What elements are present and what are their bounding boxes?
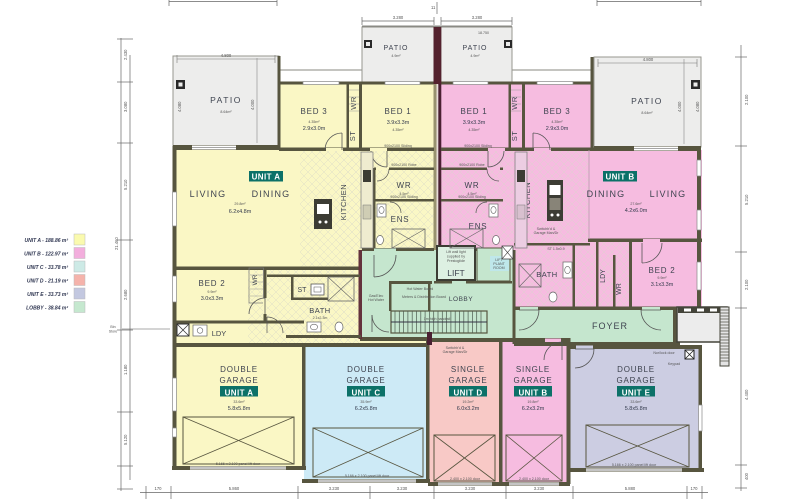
svg-text:2.400 x 2.100 door: 2.400 x 2.100 door (450, 477, 481, 481)
svg-text:DOUBLE: DOUBLE (617, 365, 655, 374)
svg-text:WR: WR (510, 96, 519, 110)
svg-text:3.230: 3.230 (534, 486, 545, 491)
svg-text:DINING: DINING (252, 189, 291, 199)
svg-text:19.8m²: 19.8m² (527, 400, 539, 404)
svg-text:4.5m²: 4.5m² (399, 192, 409, 196)
svg-text:Prestoglide: Prestoglide (447, 259, 465, 263)
svg-text:Hot Water Board: Hot Water Board (407, 287, 434, 291)
svg-text:2.1x2.3m: 2.1x2.3m (313, 316, 328, 320)
svg-text:UNIT C: UNIT C (351, 389, 380, 398)
svg-text:9.9m²: 9.9m² (657, 276, 667, 280)
svg-text:Nor/lock door: Nor/lock door (653, 351, 675, 355)
svg-text:WR: WR (349, 96, 358, 110)
svg-text:3.0x3.3m: 3.0x3.3m (201, 296, 224, 302)
svg-text:3.230: 3.230 (329, 486, 340, 491)
svg-text:5.880: 5.880 (625, 486, 636, 491)
svg-text:4.9m²: 4.9m² (391, 54, 401, 58)
svg-text:GARAGE: GARAGE (448, 376, 487, 385)
svg-text:5.120: 5.120 (123, 434, 128, 445)
svg-text:3.230: 3.230 (397, 486, 408, 491)
svg-text:LIFT: LIFT (447, 268, 464, 278)
svg-text:9.9m²: 9.9m² (207, 290, 217, 294)
svg-text:2.9x3.0m: 2.9x3.0m (303, 126, 326, 132)
svg-text:Keypad: Keypad (668, 362, 680, 366)
svg-text:GARAGE: GARAGE (346, 376, 385, 385)
svg-text:WR: WR (252, 274, 259, 285)
svg-text:3.280: 3.280 (393, 15, 404, 20)
svg-text:6.2x5.8m: 6.2x5.8m (355, 406, 378, 412)
svg-text:6.0x3.2m: 6.0x3.2m (457, 406, 480, 412)
svg-text:4.9m²: 4.9m² (470, 54, 480, 58)
svg-text:3.1x3.3m: 3.1x3.3m (651, 282, 674, 288)
svg-text:2.100: 2.100 (744, 279, 749, 290)
svg-text:5.210: 5.210 (744, 194, 749, 205)
svg-text:PATIO: PATIO (384, 45, 409, 52)
svg-text:PATIO: PATIO (210, 95, 242, 105)
svg-text:4.35m²: 4.35m² (308, 120, 320, 124)
svg-text:UNIT A - 188.86 m²: UNIT A - 188.86 m² (24, 238, 68, 244)
svg-text:11: 11 (431, 5, 436, 10)
svg-text:BATH: BATH (536, 270, 557, 279)
svg-text:29.8m²: 29.8m² (234, 202, 246, 206)
svg-text:900x2100 Sliding: 900x2100 Sliding (464, 144, 492, 148)
svg-text:8.64m²: 8.64m² (220, 110, 232, 114)
svg-text:3.080: 3.080 (123, 101, 128, 112)
svg-text:DOUBLE: DOUBLE (220, 365, 258, 374)
svg-text:4.35m²: 4.35m² (392, 128, 404, 132)
svg-text:BED 3: BED 3 (543, 107, 570, 116)
svg-text:GARAGE: GARAGE (616, 376, 655, 385)
svg-text:3.280: 3.280 (472, 15, 483, 20)
svg-text:WR: WR (397, 181, 412, 190)
svg-text:Garage Man/Dr: Garage Man/Dr (534, 231, 560, 235)
svg-text:WR: WR (465, 181, 480, 190)
svg-text:UNIT A: UNIT A (252, 173, 281, 182)
svg-text:LDY: LDY (600, 269, 607, 283)
svg-text:UNIT B - 122.97 m²: UNIT B - 122.97 m² (24, 252, 68, 258)
svg-text:4.080: 4.080 (177, 101, 182, 112)
svg-text:DINING: DINING (587, 189, 626, 199)
svg-text:2.680: 2.680 (123, 289, 128, 300)
svg-text:3.9x3.3m: 3.9x3.3m (387, 120, 410, 126)
svg-text:6.2x3.2m: 6.2x3.2m (522, 406, 545, 412)
svg-text:WR: WR (616, 283, 623, 295)
svg-text:Meters & Distribution Board: Meters & Distribution Board (402, 295, 446, 299)
svg-text:PATIO: PATIO (631, 96, 663, 106)
svg-text:4.5m²: 4.5m² (467, 192, 477, 196)
svg-text:170: 170 (155, 486, 163, 491)
svg-text:Hot Water: Hot Water (368, 298, 385, 302)
svg-text:SINGLE: SINGLE (451, 365, 485, 374)
svg-text:5.166 x 2.100 panel lift door: 5.166 x 2.100 panel lift door (216, 462, 261, 466)
svg-text:ST: ST (298, 287, 308, 294)
svg-text:LIVING: LIVING (190, 189, 227, 199)
svg-text:UNIT C - 33.78 m²: UNIT C - 33.78 m² (27, 265, 68, 271)
svg-text:GARAGE: GARAGE (219, 376, 258, 385)
svg-text:ST 1.5x0.9: ST 1.5x0.9 (547, 247, 564, 251)
svg-text:5.8x5.8m: 5.8x5.8m (228, 406, 251, 412)
svg-text:21.460: 21.460 (114, 237, 119, 250)
svg-text:BED 3: BED 3 (300, 107, 327, 116)
svg-text:1m high handrail: 1m high handrail (424, 317, 451, 321)
svg-text:PATIO: PATIO (463, 45, 488, 52)
svg-text:UNIT D: UNIT D (453, 389, 482, 398)
svg-text:4.2x6.0m: 4.2x6.0m (625, 208, 648, 214)
svg-text:4.400: 4.400 (744, 389, 749, 400)
svg-text:LOBBY: LOBBY (449, 296, 473, 303)
svg-text:ENS: ENS (391, 215, 410, 224)
svg-text:5.166 x 2.100 panel lift door: 5.166 x 2.100 panel lift door (612, 463, 657, 467)
svg-text:900x2100 Robe: 900x2100 Robe (391, 163, 416, 167)
svg-text:ST: ST (510, 131, 519, 142)
svg-text:FOYER: FOYER (592, 321, 628, 331)
svg-text:SINGLE: SINGLE (516, 365, 550, 374)
svg-text:2.430: 2.430 (123, 49, 128, 60)
svg-text:KITCHEN: KITCHEN (339, 184, 348, 220)
svg-text:6.2x4.8m: 6.2x4.8m (229, 209, 252, 215)
svg-text:LOBBY - 38.84 m²: LOBBY - 38.84 m² (26, 306, 68, 312)
svg-text:5.860: 5.860 (229, 486, 240, 491)
svg-text:BED 2: BED 2 (648, 266, 675, 275)
svg-text:8.64m²: 8.64m² (641, 111, 653, 115)
svg-text:DOUBLE: DOUBLE (347, 365, 385, 374)
svg-text:UNIT B: UNIT B (518, 389, 547, 398)
svg-text:BED 2: BED 2 (198, 279, 225, 288)
svg-text:400: 400 (744, 472, 749, 480)
svg-text:35.9m²: 35.9m² (360, 400, 372, 404)
svg-text:GARAGE: GARAGE (513, 376, 552, 385)
svg-text:BATH: BATH (309, 306, 330, 315)
svg-text:1.180: 1.180 (123, 364, 128, 375)
svg-text:UNIT D - 21.19 m²: UNIT D - 21.19 m² (27, 279, 68, 285)
svg-text:170: 170 (691, 486, 699, 491)
svg-text:LIVING: LIVING (650, 189, 687, 199)
svg-text:Store: Store (109, 330, 118, 334)
svg-text:27.6m²: 27.6m² (630, 202, 642, 206)
svg-text:33.6m²: 33.6m² (630, 400, 642, 404)
svg-text:Bin: Bin (110, 325, 115, 329)
svg-text:3.230: 3.230 (465, 486, 476, 491)
svg-text:18.750: 18.750 (478, 31, 489, 35)
svg-text:4.35m²: 4.35m² (551, 120, 563, 124)
svg-text:2.100: 2.100 (744, 94, 749, 105)
svg-text:33.6m²: 33.6m² (233, 400, 245, 404)
svg-text:UNIT B: UNIT B (605, 173, 634, 182)
svg-text:supplied by: supplied by (447, 255, 465, 259)
svg-text:ROOM: ROOM (493, 266, 504, 270)
svg-text:2.9x3.0m: 2.9x3.0m (546, 126, 569, 132)
svg-text:5.210: 5.210 (123, 179, 128, 190)
svg-text:Garage Man/Dr: Garage Man/Dr (443, 350, 469, 354)
svg-text:UNIT E - 33.73 m²: UNIT E - 33.73 m² (27, 292, 68, 298)
svg-text:ST: ST (348, 131, 357, 142)
svg-text:900x2100 Robe: 900x2100 Robe (459, 163, 484, 167)
svg-text:LDY: LDY (212, 329, 227, 338)
svg-text:BED 1: BED 1 (384, 107, 411, 116)
svg-text:Lift wall light: Lift wall light (446, 250, 466, 254)
svg-text:4.800: 4.800 (643, 57, 654, 62)
svg-text:4.35m²: 4.35m² (468, 128, 480, 132)
svg-text:19.2m²: 19.2m² (462, 400, 474, 404)
svg-text:2.400 x 2.100 door: 2.400 x 2.100 door (519, 477, 550, 481)
svg-text:5.166 x 2.100 panel lift door: 5.166 x 2.100 panel lift door (345, 474, 390, 478)
svg-text:4.000: 4.000 (250, 99, 255, 110)
svg-text:5.8x5.8m: 5.8x5.8m (625, 406, 648, 412)
svg-text:ENS: ENS (469, 222, 488, 231)
svg-text:3.9x3.3m: 3.9x3.3m (463, 120, 486, 126)
svg-text:4.000: 4.000 (677, 101, 682, 112)
svg-text:UNIT E: UNIT E (622, 389, 651, 398)
svg-text:4.080: 4.080 (695, 101, 700, 112)
svg-text:4.800: 4.800 (221, 53, 232, 58)
svg-text:900x2100 Sliding: 900x2100 Sliding (384, 144, 412, 148)
svg-text:UNIT A: UNIT A (225, 389, 254, 398)
svg-text:BED 1: BED 1 (460, 107, 487, 116)
